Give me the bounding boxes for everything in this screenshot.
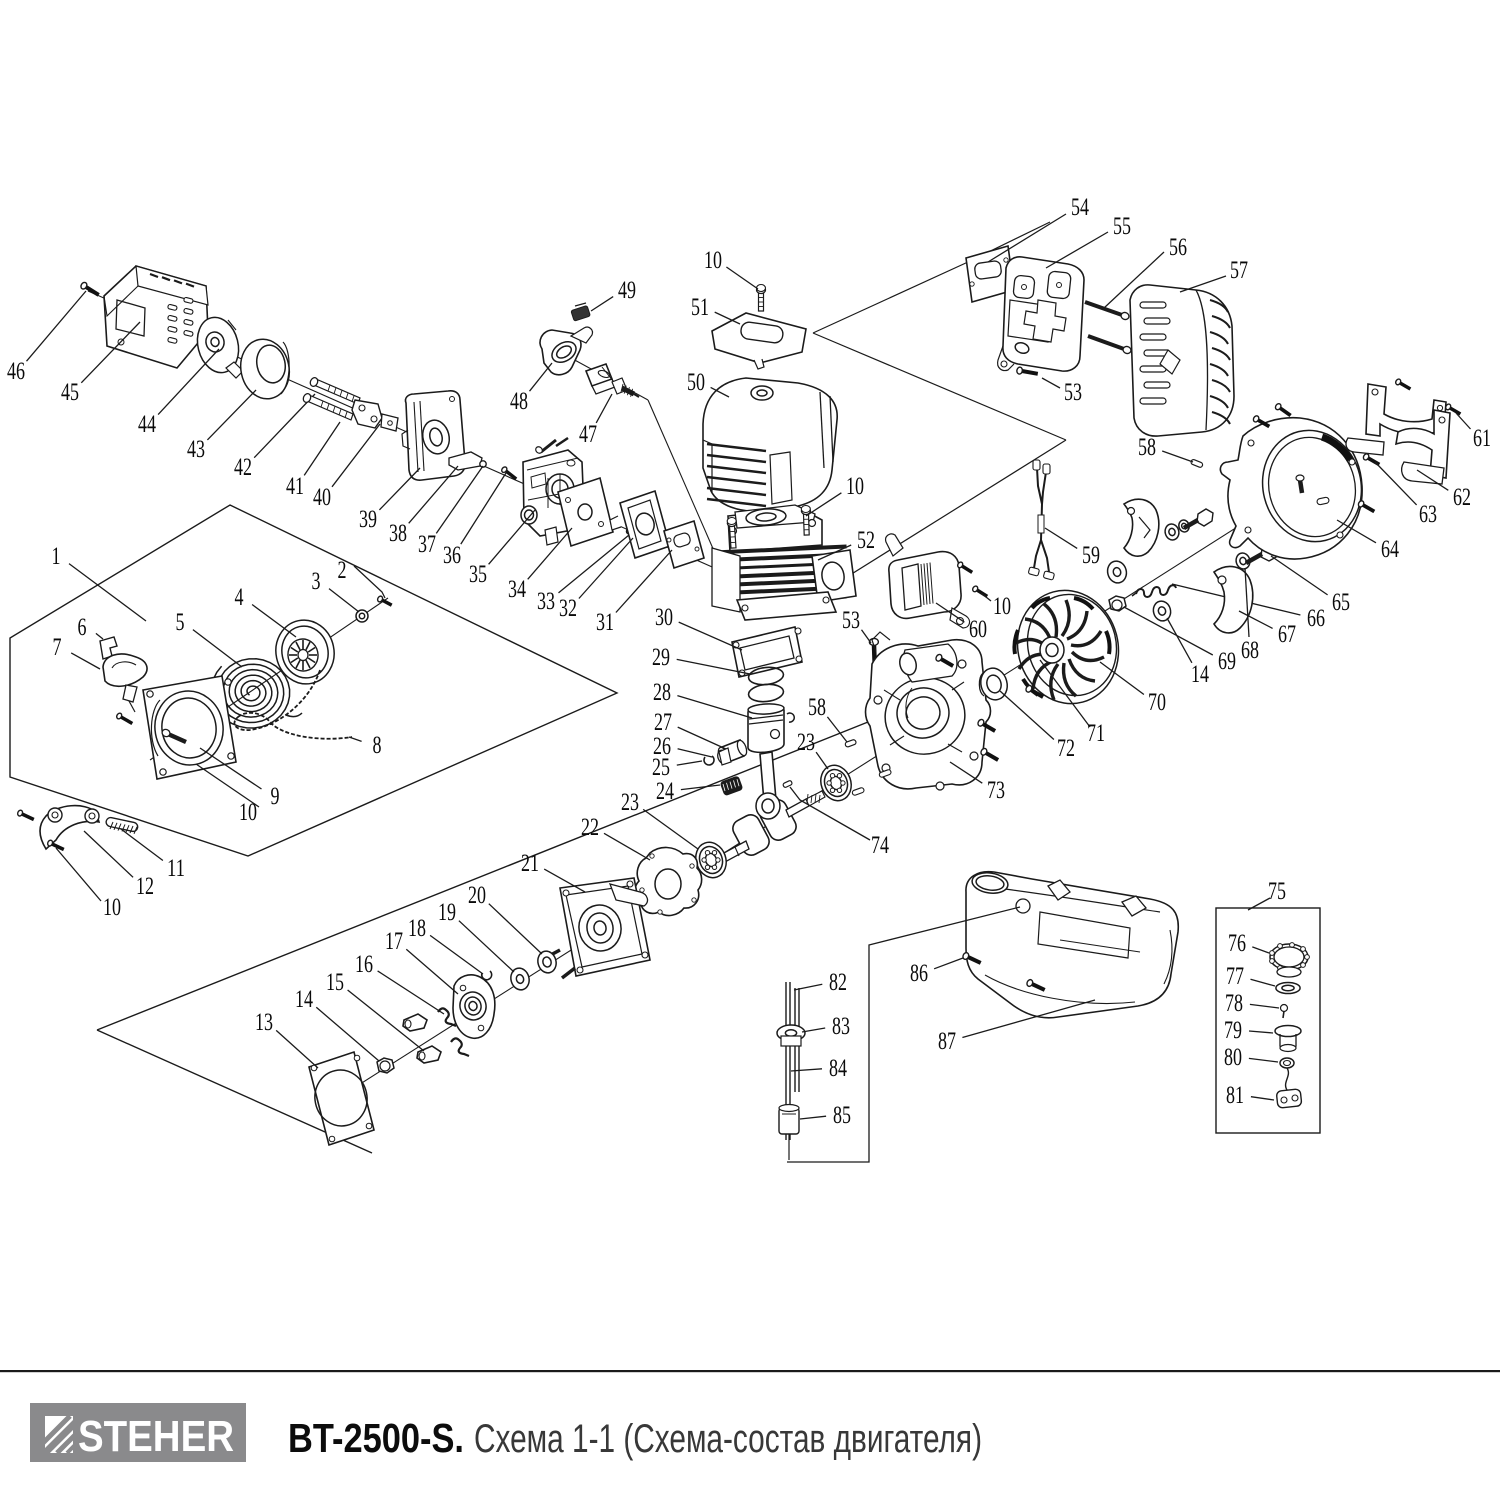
svg-text:61: 61: [1473, 425, 1491, 452]
svg-text:76: 76: [1228, 930, 1246, 957]
svg-text:54: 54: [1071, 194, 1089, 221]
svg-text:18: 18: [408, 915, 426, 942]
svg-text:16: 16: [355, 951, 373, 978]
svg-text:36: 36: [443, 542, 461, 569]
svg-text:6: 6: [78, 614, 87, 641]
svg-text:14: 14: [1191, 661, 1209, 688]
svg-text:11: 11: [167, 855, 185, 882]
svg-text:37: 37: [418, 531, 436, 558]
svg-text:77: 77: [1226, 963, 1244, 990]
svg-text:Схема 1-1 (Схема-состав двигат: Схема 1-1 (Схема-состав двигателя): [474, 1417, 982, 1461]
svg-text:46: 46: [7, 358, 25, 385]
svg-text:29: 29: [652, 644, 670, 671]
svg-text:19: 19: [438, 899, 456, 926]
svg-text:10: 10: [846, 473, 864, 500]
svg-text:45: 45: [61, 379, 79, 406]
svg-text:70: 70: [1148, 689, 1166, 716]
svg-text:85: 85: [833, 1102, 851, 1129]
svg-text:10: 10: [239, 799, 257, 826]
svg-text:23: 23: [621, 789, 639, 816]
svg-text:44: 44: [138, 411, 156, 438]
svg-text:22: 22: [581, 814, 599, 841]
svg-text:58: 58: [1138, 434, 1156, 461]
svg-text:10: 10: [993, 593, 1011, 620]
svg-text:25: 25: [652, 754, 670, 781]
svg-text:43: 43: [187, 436, 205, 463]
svg-text:10: 10: [704, 247, 722, 274]
svg-text:20: 20: [468, 882, 486, 909]
svg-text:79: 79: [1224, 1017, 1242, 1044]
svg-text:50: 50: [687, 369, 705, 396]
svg-text:21: 21: [521, 850, 539, 877]
svg-text:80: 80: [1224, 1044, 1242, 1071]
svg-text:65: 65: [1332, 589, 1350, 616]
svg-text:68: 68: [1241, 637, 1259, 664]
svg-text:10: 10: [103, 894, 121, 921]
svg-text:59: 59: [1082, 542, 1100, 569]
svg-text:30: 30: [655, 604, 673, 631]
svg-text:87: 87: [938, 1028, 956, 1055]
svg-text:86: 86: [910, 960, 928, 987]
svg-text:33: 33: [537, 588, 555, 615]
svg-text:71: 71: [1087, 720, 1105, 747]
svg-text:31: 31: [596, 609, 614, 636]
svg-text:7: 7: [53, 634, 62, 661]
svg-text:64: 64: [1381, 536, 1399, 563]
svg-text:1: 1: [52, 543, 61, 570]
svg-text:69: 69: [1218, 648, 1236, 675]
svg-text:63: 63: [1419, 501, 1437, 528]
svg-text:17: 17: [385, 928, 403, 955]
svg-text:40: 40: [313, 484, 331, 511]
svg-text:67: 67: [1278, 621, 1296, 648]
svg-text:42: 42: [234, 454, 252, 481]
svg-text:28: 28: [653, 679, 671, 706]
svg-text:78: 78: [1225, 990, 1243, 1017]
svg-text:STEHER: STEHER: [78, 1412, 234, 1461]
svg-text:60: 60: [969, 616, 987, 643]
svg-text:38: 38: [389, 520, 407, 547]
svg-text:32: 32: [559, 595, 577, 622]
svg-text:53: 53: [1064, 379, 1082, 406]
svg-text:47: 47: [579, 421, 597, 448]
svg-text:53: 53: [842, 607, 860, 634]
svg-text:52: 52: [857, 527, 875, 554]
svg-text:13: 13: [255, 1009, 273, 1036]
svg-text:73: 73: [987, 777, 1005, 804]
svg-text:14: 14: [295, 986, 313, 1013]
svg-text:41: 41: [286, 473, 304, 500]
svg-text:9: 9: [271, 783, 280, 810]
svg-text:49: 49: [618, 277, 636, 304]
svg-text:12: 12: [136, 873, 154, 900]
svg-text:75: 75: [1268, 878, 1286, 905]
svg-text:24: 24: [656, 778, 674, 805]
svg-text:27: 27: [654, 709, 672, 736]
svg-text:51: 51: [691, 294, 709, 321]
svg-text:82: 82: [829, 969, 847, 996]
svg-text:3: 3: [312, 568, 321, 595]
svg-text:15: 15: [326, 969, 344, 996]
svg-text:2: 2: [338, 557, 347, 584]
svg-text:83: 83: [832, 1013, 850, 1040]
svg-text:66: 66: [1307, 605, 1325, 632]
svg-text:74: 74: [871, 832, 889, 859]
svg-text:5: 5: [176, 609, 185, 636]
svg-text:8: 8: [373, 732, 382, 759]
svg-text:23: 23: [797, 729, 815, 756]
svg-text:81: 81: [1226, 1082, 1244, 1109]
svg-text:34: 34: [508, 576, 526, 603]
svg-text:55: 55: [1113, 213, 1131, 240]
svg-text:62: 62: [1453, 484, 1471, 511]
svg-text:BT-2500-S.: BT-2500-S.: [288, 1415, 464, 1461]
svg-text:57: 57: [1230, 257, 1248, 284]
svg-text:4: 4: [235, 584, 244, 611]
svg-text:56: 56: [1169, 234, 1187, 261]
svg-text:72: 72: [1057, 735, 1075, 762]
svg-text:48: 48: [510, 388, 528, 415]
svg-text:84: 84: [829, 1055, 847, 1082]
svg-text:58: 58: [808, 694, 826, 721]
svg-text:39: 39: [359, 506, 377, 533]
svg-text:35: 35: [469, 561, 487, 588]
